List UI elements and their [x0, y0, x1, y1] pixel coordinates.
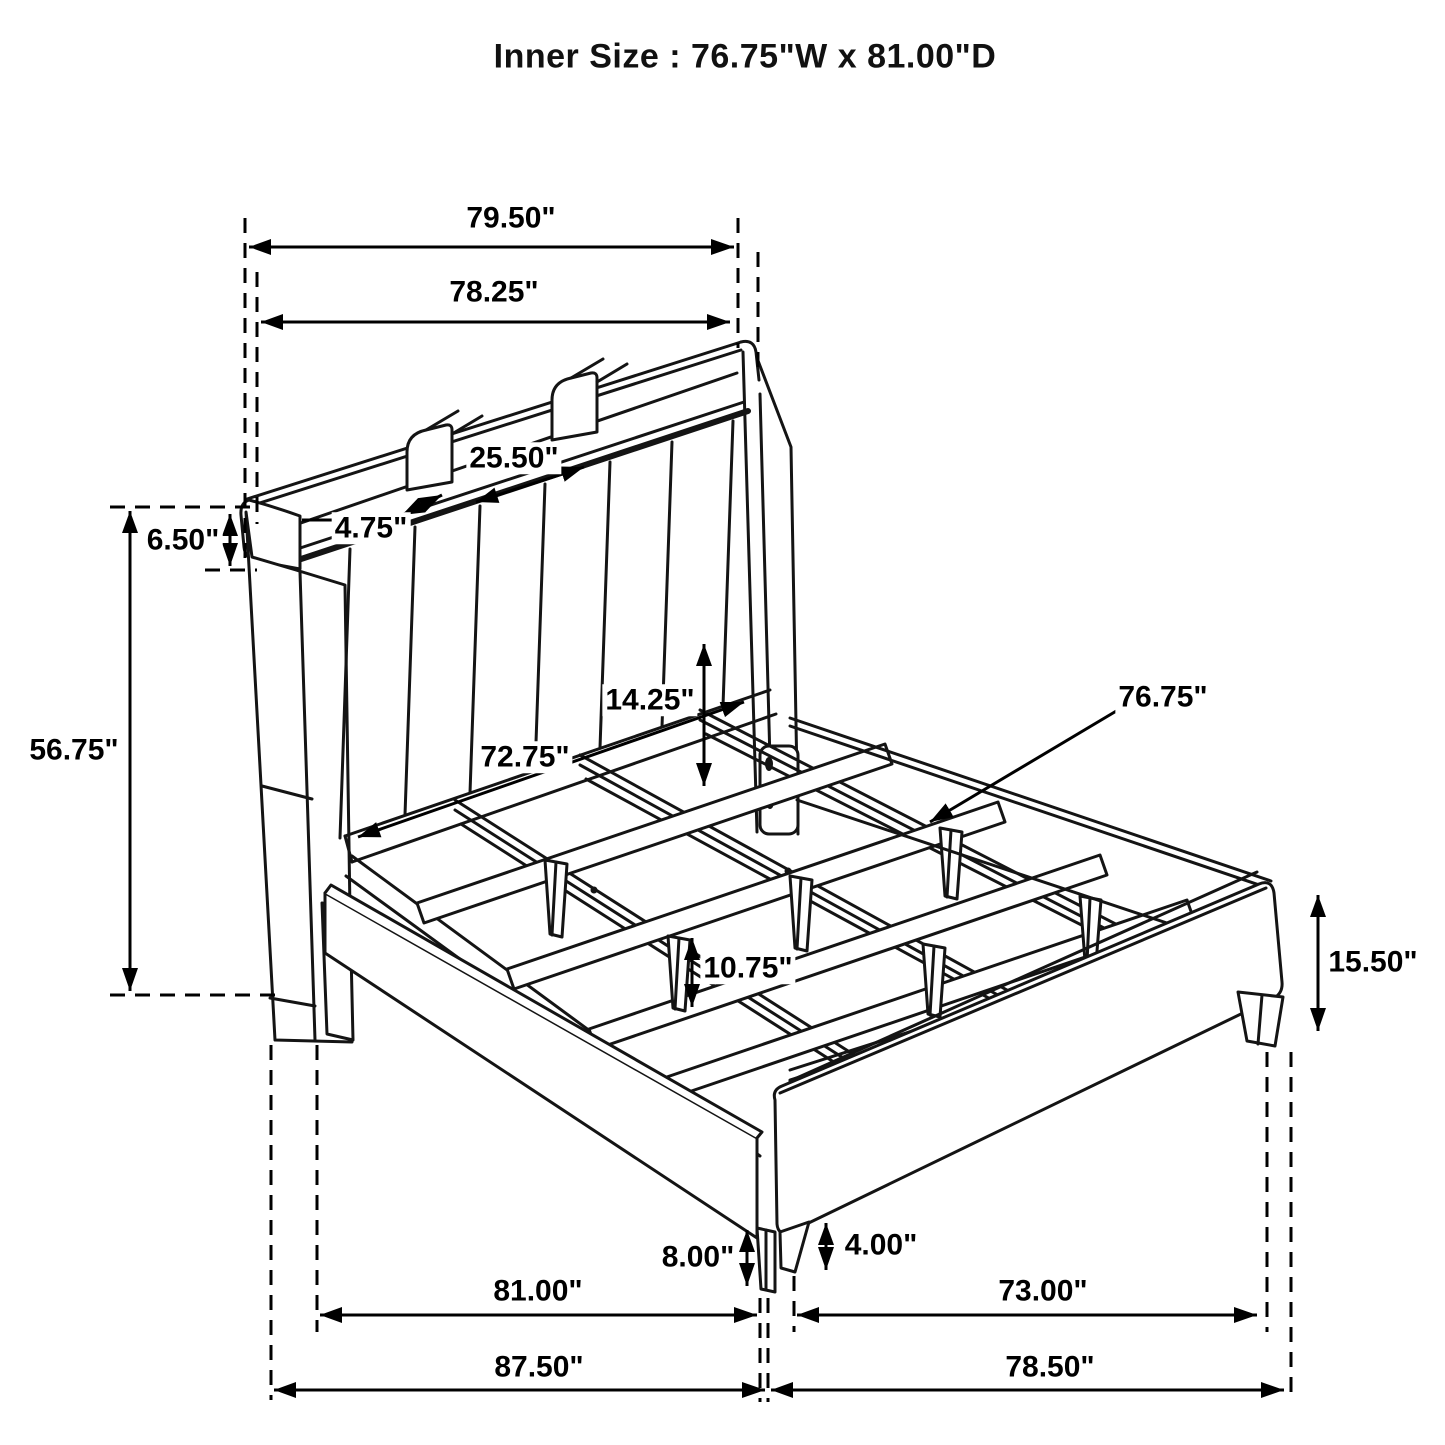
bed-line-drawing — [0, 0, 1445, 1445]
dim-label-support-leg-height: 10.75" — [700, 952, 795, 984]
dim-label-slat-rail-length: 76.75" — [1115, 681, 1210, 713]
dim-label-shelf-height: 6.50" — [144, 524, 223, 556]
dim-label-shelf-depth: 4.75" — [332, 512, 411, 544]
dim-label-top-width-inner: 78.25" — [446, 276, 541, 308]
dim-label-footboard-inner-width: 73.00" — [995, 1275, 1090, 1307]
front-leg — [757, 1228, 775, 1292]
leader-lines — [302, 520, 1118, 822]
dim-label-footboard-height: 15.50" — [1325, 946, 1420, 978]
dim-label-front-leg-height: 8.00" — [659, 1241, 738, 1273]
dim-label-footboard-leg: 4.00" — [842, 1229, 921, 1261]
dim-label-shelf-opening: 25.50" — [466, 442, 561, 474]
dim-label-overall-width: 78.50" — [1002, 1351, 1097, 1383]
dim-label-rail-to-slat: 14.25" — [602, 684, 697, 716]
dimension-drawing-canvas: Inner Size : 76.75"W x 81.00"D 79.50" 78… — [0, 0, 1445, 1445]
dim-label-top-width-outer: 79.50" — [463, 202, 558, 234]
left-side-rail — [322, 885, 762, 1238]
dim-label-overall-depth: 87.50" — [491, 1351, 586, 1383]
drawing-title: Inner Size : 76.75"W x 81.00"D — [494, 38, 997, 77]
dim-label-headboard-height: 56.75" — [26, 734, 121, 766]
footboard — [774, 872, 1282, 1233]
dim-label-inner-rail-width: 72.75" — [477, 741, 572, 773]
dim-label-base-inner-depth: 81.00" — [490, 1275, 585, 1307]
